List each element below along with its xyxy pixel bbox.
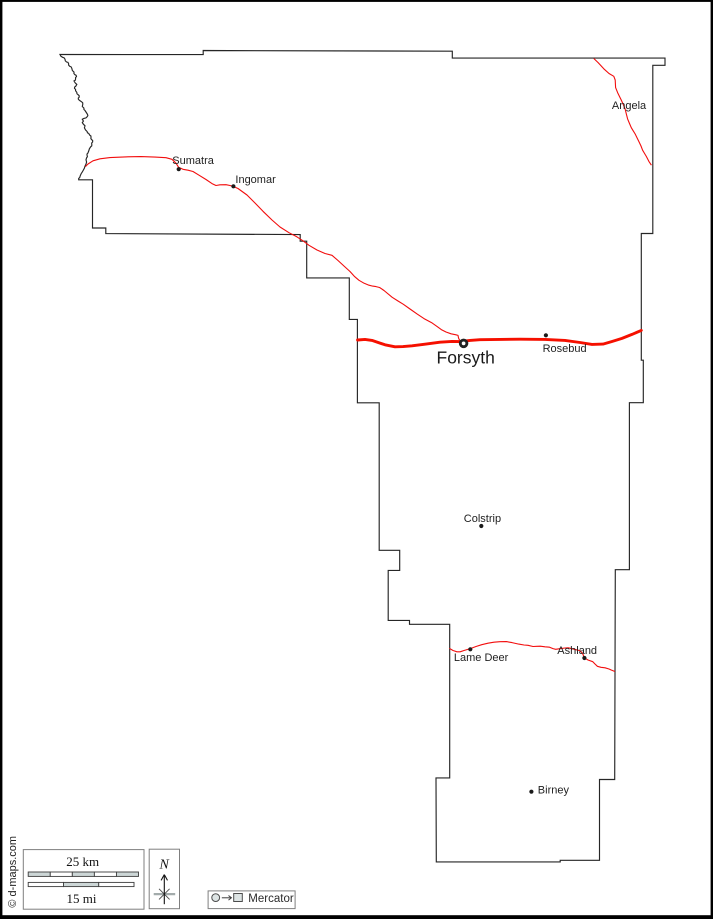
svg-text:Rosebud: Rosebud bbox=[543, 343, 587, 355]
svg-text:Forsyth: Forsyth bbox=[437, 347, 495, 367]
svg-text:Sumatra: Sumatra bbox=[172, 155, 214, 167]
svg-text:Lame Deer: Lame Deer bbox=[454, 652, 509, 664]
svg-text:Colstrip: Colstrip bbox=[464, 513, 501, 525]
svg-text:15 mi: 15 mi bbox=[67, 891, 97, 906]
svg-text:Angela: Angela bbox=[612, 100, 647, 112]
svg-text:© d-maps.com: © d-maps.com bbox=[7, 836, 19, 908]
svg-text:25 km: 25 km bbox=[66, 854, 99, 869]
svg-text:Ashland: Ashland bbox=[557, 645, 597, 657]
svg-text:Birney: Birney bbox=[538, 784, 570, 796]
svg-text:Ingomar: Ingomar bbox=[235, 174, 276, 186]
svg-text:N: N bbox=[159, 857, 170, 872]
svg-text:Mercator: Mercator bbox=[248, 893, 294, 905]
